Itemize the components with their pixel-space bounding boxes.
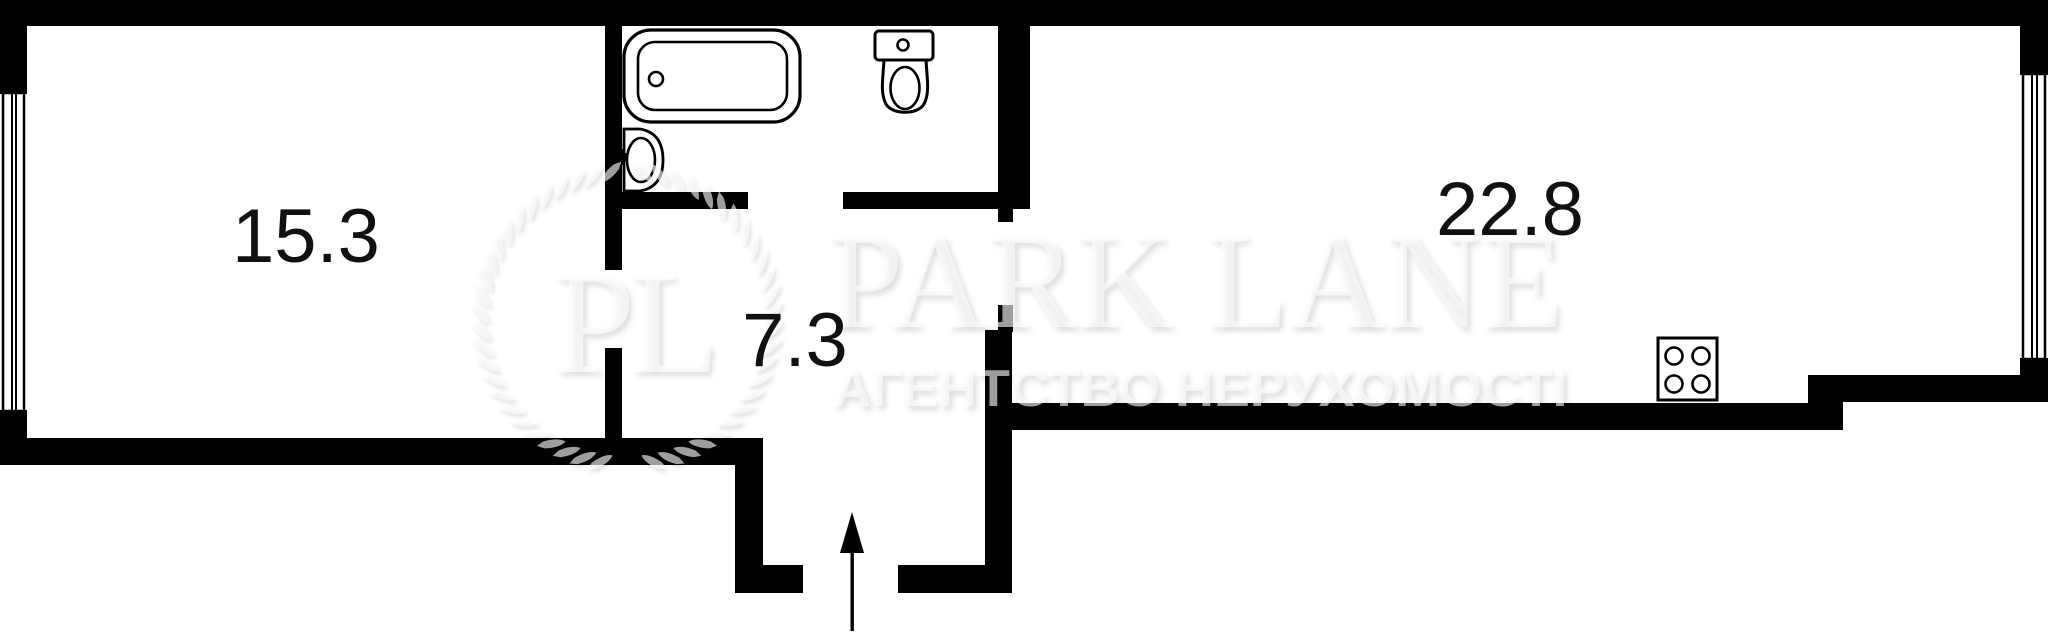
window-symbol-left <box>3 93 24 411</box>
stove-4-burner-icon <box>1658 338 1717 400</box>
wall-top <box>0 0 2048 26</box>
room-area-label-kitchen: 22.8 <box>1436 167 1584 252</box>
wall-right-upper <box>2020 0 2048 75</box>
window-symbol-right <box>2023 74 2045 359</box>
wall-right-lower <box>2020 358 2048 402</box>
wall-room1-right-upper <box>605 26 622 270</box>
entrance-arrow <box>840 512 864 631</box>
watermark-tagline: АГЕНТСТВО НЕРУХОМОСТІ <box>833 360 1568 418</box>
wall-left-upper <box>0 0 27 94</box>
wall-bathroom-right <box>998 26 1030 195</box>
bathtub-icon <box>624 30 800 122</box>
wall-kitchen-bottom-right <box>1808 375 2048 402</box>
watermark-monogram: PL <box>553 241 714 405</box>
toilet-icon <box>875 31 933 112</box>
wall-bathroom-bottom-left <box>605 192 748 209</box>
floor-plan: PL PARK LANE АГЕНТСТВО НЕРУХОМОСТІ 15.3 … <box>0 0 2048 633</box>
room-area-label-hallway: 7.3 <box>742 298 848 383</box>
wall-entry-left-foot <box>735 565 803 593</box>
sink-icon <box>615 129 663 191</box>
room-area-label-living: 15.3 <box>232 194 380 279</box>
